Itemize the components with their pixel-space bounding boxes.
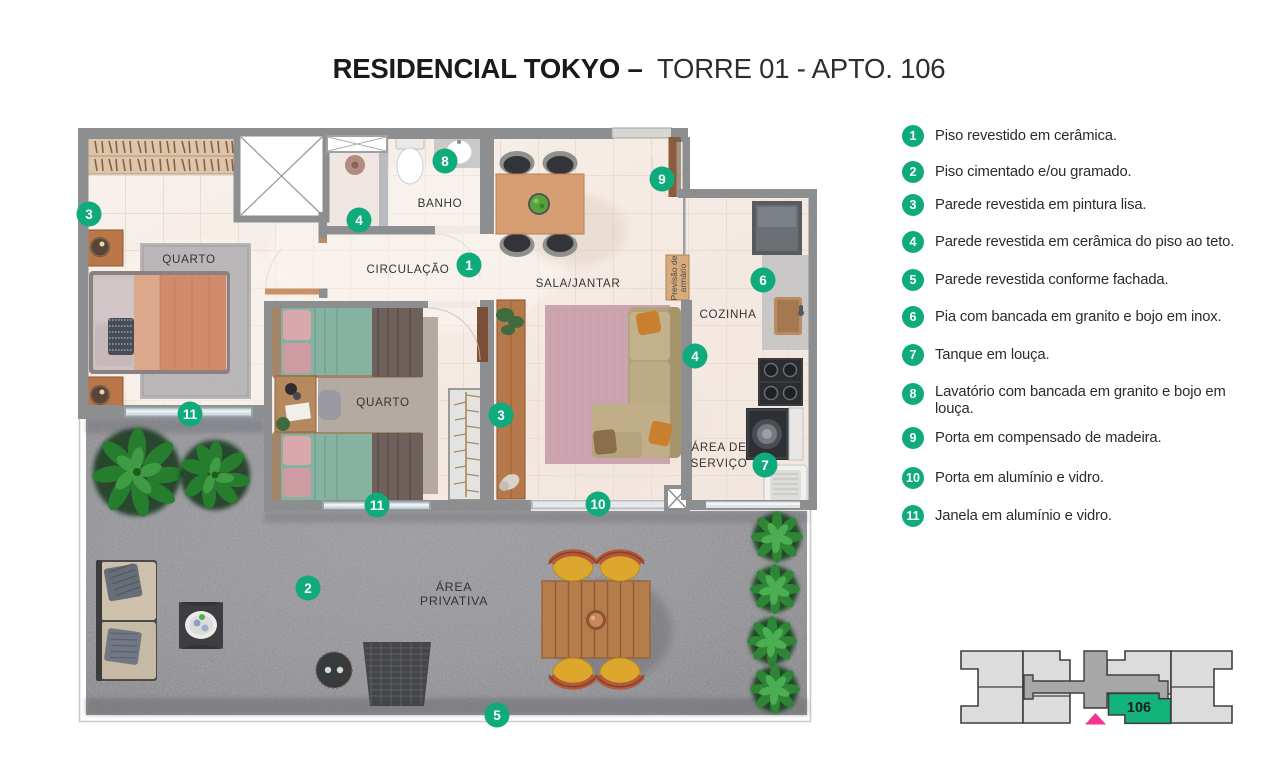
svg-text:COZINHA: COZINHA xyxy=(699,308,756,321)
svg-text:BANHO: BANHO xyxy=(418,197,463,210)
svg-text:11: 11 xyxy=(183,407,198,422)
svg-text:106: 106 xyxy=(1127,700,1151,716)
svg-text:4: 4 xyxy=(355,213,363,228)
svg-text:QUARTO: QUARTO xyxy=(162,253,215,266)
svg-text:8: 8 xyxy=(441,154,449,169)
svg-text:CIRCULAÇÃO: CIRCULAÇÃO xyxy=(366,263,449,276)
svg-text:5: 5 xyxy=(493,708,501,723)
svg-text:6: 6 xyxy=(759,273,767,288)
svg-text:9: 9 xyxy=(658,172,666,187)
svg-text:3: 3 xyxy=(497,408,505,423)
svg-text:4: 4 xyxy=(691,349,699,364)
svg-text:QUARTO: QUARTO xyxy=(356,396,409,409)
svg-text:7: 7 xyxy=(761,458,769,473)
svg-text:1: 1 xyxy=(465,258,473,273)
svg-text:10: 10 xyxy=(590,497,605,512)
svg-text:PRIVATIVA: PRIVATIVA xyxy=(420,594,488,608)
svg-text:11: 11 xyxy=(370,498,385,513)
svg-text:ÁREA: ÁREA xyxy=(436,579,473,594)
svg-text:SERVIÇO: SERVIÇO xyxy=(691,457,748,470)
svg-text:SALA/JANTAR: SALA/JANTAR xyxy=(536,277,621,290)
svg-text:3: 3 xyxy=(85,207,93,222)
svg-text:armário: armário xyxy=(678,263,688,292)
svg-text:ÁREA DE: ÁREA DE xyxy=(691,441,746,454)
svg-text:2: 2 xyxy=(304,581,312,596)
